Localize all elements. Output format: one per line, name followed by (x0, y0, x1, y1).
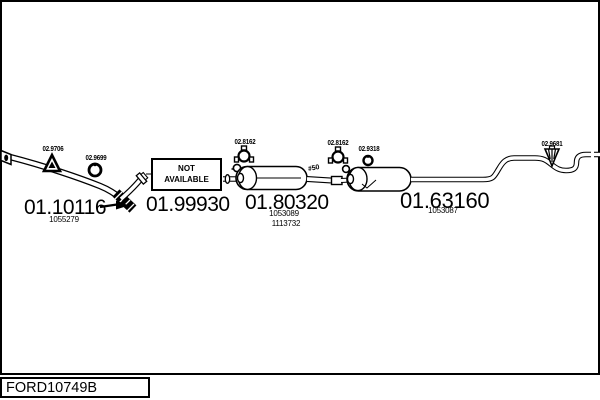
part-ref-rear-silencer: 1053087 (422, 206, 464, 215)
label-clamp-center: 02.8162 (229, 139, 261, 146)
label-hanger-rear: 02.9681 (536, 141, 568, 148)
center-muffler-drawing (223, 164, 342, 189)
catalog-code-box: FORD10749B (0, 377, 150, 398)
label-clamp-rear: 02.8162 (322, 140, 354, 147)
not-available-line2: AVAILABLE (164, 175, 209, 185)
pipe-clamp-icon (329, 147, 348, 163)
label-hanger-front: 02.9706 (37, 146, 69, 153)
exhaust-diagram-page: 02.9706 02.9699 02.8162 02.8162 02.9318 … (0, 0, 600, 400)
label-ring-front: 02.9699 (80, 155, 112, 162)
rear-silencer-drawing (341, 155, 600, 192)
triangle-hanger-icon (44, 155, 60, 171)
rubber-ring-icon (89, 163, 101, 176)
part-ref-front-pipe: 1055279 (44, 215, 84, 224)
part-ref1-center-muffler: 1053089 (263, 209, 305, 218)
catalog-code: FORD10749B (6, 380, 97, 396)
part-number-flex-section: 01.99930 (146, 193, 230, 217)
pipe-clamp-icon (235, 146, 254, 162)
not-available-line1: NOT (178, 164, 195, 174)
label-ring-rear: 02.9318 (353, 146, 385, 153)
not-available-box: NOT AVAILABLE (151, 158, 222, 191)
rubber-ring-small-icon (364, 155, 373, 165)
pipe-coupling (332, 177, 343, 185)
pipe-clamp-on-rear-inlet (343, 166, 350, 173)
tail-pipe-drawing (411, 155, 600, 180)
part-ref2-center-muffler: 1113732 (265, 219, 307, 228)
